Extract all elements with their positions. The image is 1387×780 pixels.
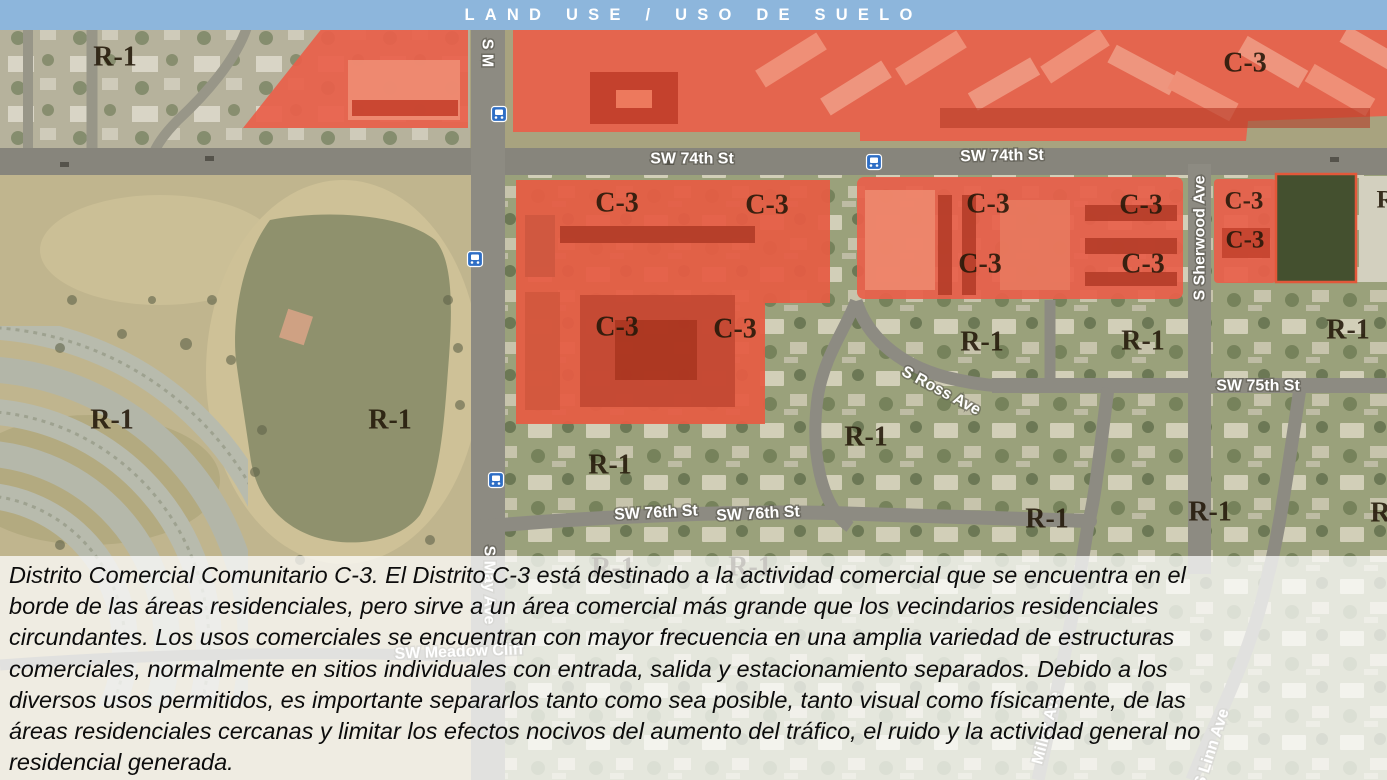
zone-label-c3: C-3 — [595, 188, 639, 219]
street-label: S Sherwood Ave — [1192, 175, 1209, 300]
zone-label-r1: R-1 — [1121, 326, 1165, 357]
zone-label-r1: R-1 — [368, 405, 412, 436]
zone-label-r1: R-1 — [1326, 315, 1370, 346]
zone-label-c3: C-3 — [1223, 48, 1267, 79]
zone-label-r1: R-1 — [1025, 504, 1069, 535]
zone-label-c3: C-3 — [1226, 227, 1265, 254]
zone-label-c3: C-3 — [958, 249, 1002, 280]
zone-label-c3: C-3 — [595, 312, 639, 343]
street-label: SW 74th St — [650, 151, 734, 168]
header-bar: LAND USE / USO DE SUELO — [0, 0, 1387, 30]
zone-label-c3: C-3 — [966, 189, 1010, 220]
zone-label-r1: R-1 — [90, 405, 134, 436]
description-line: diversos usos permitidos, es importante … — [9, 685, 1381, 716]
description-line: circundantes. Los usos comerciales se en… — [9, 622, 1381, 653]
zone-label-r1: R-1 — [960, 327, 1004, 358]
description-line: áreas residenciales cercanas y limitar l… — [9, 716, 1381, 747]
page-title: LAND USE / USO DE SUELO — [464, 6, 922, 25]
pond — [235, 215, 451, 543]
bus-stop-icon — [492, 107, 507, 122]
zone-label-c3: C-3 — [1119, 190, 1163, 221]
zone-label-c3: C-3 — [713, 314, 757, 345]
zone-label-c3: C-3 — [1225, 188, 1264, 215]
street-label: SW 74th St — [960, 147, 1045, 165]
bus-stop-icon — [489, 473, 504, 488]
road-sw-75th — [992, 378, 1387, 393]
zone-label-r1: R-1 — [1188, 497, 1232, 528]
description-line: Distrito Comercial Comunitario C-3. El D… — [9, 560, 1381, 591]
bus-stop-icon — [867, 155, 882, 170]
description-line: residencial generada. — [9, 747, 1381, 778]
description-overlay: Distrito Comercial Comunitario C-3. El D… — [0, 556, 1387, 780]
zone-label-r1: R-1 — [844, 422, 888, 453]
bus-stop-icon — [468, 252, 483, 267]
zone-label-r1: R-1 — [93, 42, 137, 73]
zone-label-r1: R-1 — [588, 450, 632, 481]
street-label: SW 75th St — [1216, 378, 1300, 395]
description-line: comerciales, normalmente en sitios indiv… — [9, 654, 1381, 685]
street-label: S M — [479, 39, 496, 67]
c3-outlined-lot — [1276, 174, 1356, 282]
zone-label-c3: C-3 — [1121, 249, 1165, 280]
description-line: borde de las áreas residenciales, pero s… — [9, 591, 1381, 622]
zone-label-r1: R-1 — [1370, 498, 1387, 529]
zone-label-c3: C-3 — [745, 190, 789, 221]
zone-label-r1: R-1 — [1377, 187, 1387, 214]
land-use-map-slide: SW 74th St SW 74th St S M S Sherwood Ave… — [0, 0, 1387, 780]
